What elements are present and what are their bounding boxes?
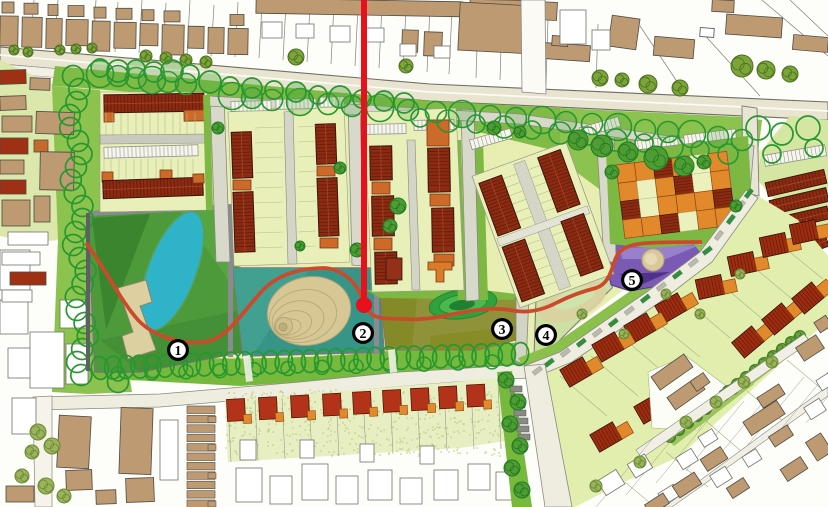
svg-text:3: 3: [499, 323, 506, 338]
svg-text:4: 4: [543, 329, 550, 344]
svg-text:5: 5: [629, 274, 636, 289]
svg-text:2: 2: [360, 327, 367, 342]
svg-text:1: 1: [175, 344, 182, 359]
